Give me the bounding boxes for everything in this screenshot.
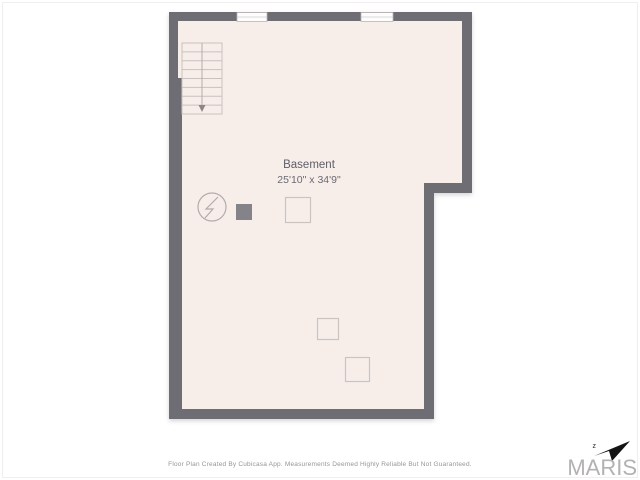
floor-plan-drawing: [0, 0, 640, 480]
basement-outline: [169, 12, 472, 419]
left-wall-thick-section: [169, 78, 182, 418]
room-label: Basement 25'10" x 34'9": [229, 158, 389, 188]
floor-plan-page: Basement 25'10" x 34'9" Floor Plan Creat…: [0, 0, 640, 480]
footer-disclaimer: Floor Plan Created By Cubicasa App. Meas…: [0, 461, 640, 468]
window-icon: [361, 13, 393, 22]
basement-floor: [178, 21, 462, 409]
room-dimensions: 25'10" x 34'9": [229, 174, 389, 187]
maris-logo: z MARIS: [573, 439, 637, 479]
window-icon: [237, 13, 267, 22]
logo-text: MARIS: [567, 457, 637, 479]
room-name: Basement: [229, 158, 389, 172]
support-post-icon: [236, 204, 252, 220]
